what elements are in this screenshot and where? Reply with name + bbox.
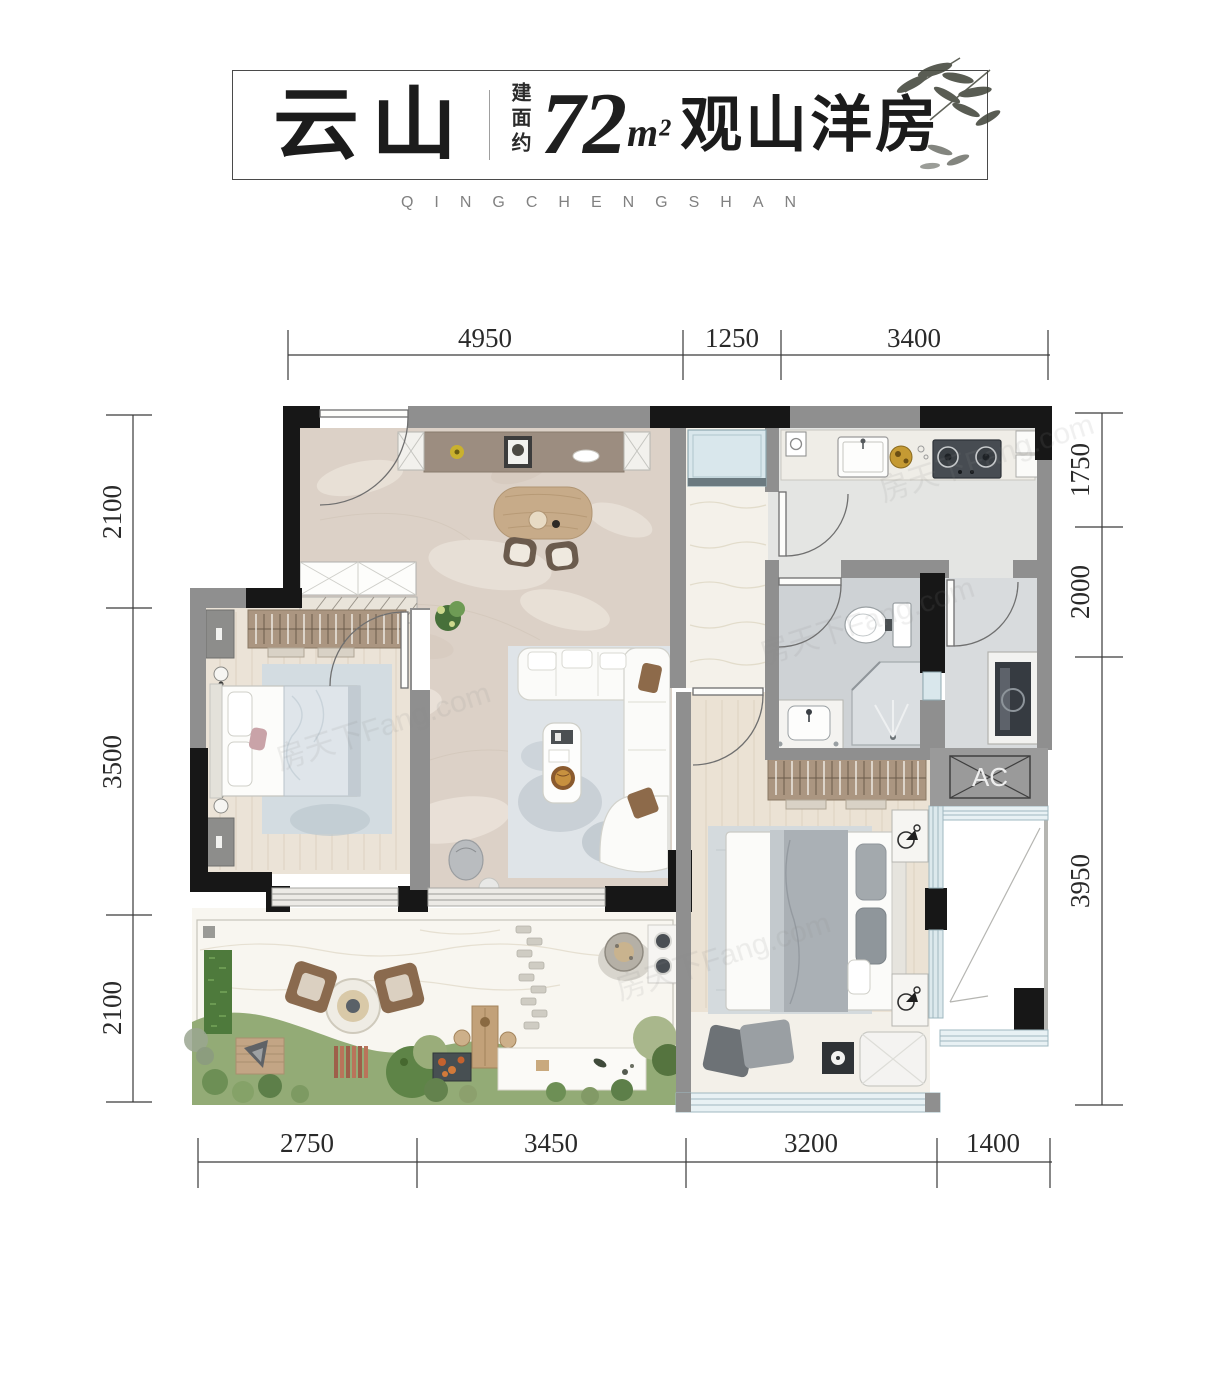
dining-cup [552,520,560,528]
bay-east-edge [1044,806,1048,1030]
sofa-pillow-3 [600,653,626,669]
dimension-bottom: 2750 3450 3200 1400 [198,1128,1052,1188]
terrace-sliding-door-2 [428,888,605,906]
terrace-sliding-door-1 [272,888,398,906]
wall-pier-east [605,886,669,912]
dim-bottom-4: 1400 [966,1128,1020,1158]
dim-top-1: 4950 [458,323,512,353]
dim-top-2: 1250 [705,323,759,353]
sofa-pillow-2 [562,650,592,668]
bedroom2-south-window [676,1093,940,1112]
wall-east-gray [1037,460,1052,750]
wall-bedroom1-west-black [190,748,208,878]
bamboo-icon [895,58,1002,170]
dining-chair-left [502,536,538,568]
sofa-pillow-1 [528,652,556,670]
dim-bottom-1: 2750 [280,1128,334,1158]
ac-label: AC [972,762,1008,792]
lounge-chair [449,840,483,880]
sideboard-flower-center [455,450,460,455]
dresser-handle-2 [216,836,222,848]
dimension-top: 4950 1250 3400 [288,323,1050,380]
dresser-handle-1 [216,628,222,640]
bathroom-vanity [768,700,843,750]
kitchen-dish [890,446,912,468]
dim-left-2: 3500 [97,735,127,789]
wall-lamp-bottom [214,799,228,813]
coffee-table [543,723,581,803]
bath-utility-window [923,672,941,700]
hallway-window [688,430,766,486]
cabinet-x-left [398,432,424,470]
utility-room [988,652,1038,744]
terrace-corner-block-left [203,926,215,938]
wall-bedroom1-south [190,872,272,892]
floor-plan-canvas: AC 房天下Fang.com 房天下Fang.com 房天下Fang.com 房… [0,0,1218,1400]
planter-box [433,1053,471,1081]
nightstand-bottom [892,974,928,1026]
wall-bay-corner [1014,988,1048,1030]
dim-right-3: 3950 [1065,854,1095,908]
wall-bedroom1-west-gray [190,608,206,748]
wall-utility-ne [1013,560,1037,578]
wall-top-black-2 [650,406,790,428]
wall-bedroom2-north [765,748,930,760]
tree-shade-dot [400,1058,408,1066]
dimension-left: 2100 3500 2100 [97,415,152,1102]
bay-bottom-window [940,1030,1048,1046]
dim-bottom-2: 3450 [524,1128,578,1158]
nightstand-top [892,810,928,862]
hedge [204,950,232,1034]
wall-bedroom2-east-pier [925,888,947,930]
fire-pit-center [346,999,360,1013]
dim-left-1: 2100 [97,485,127,539]
wall-top-black-1 [283,406,320,428]
wall-bath-nw [765,560,779,578]
dim-top-3: 3400 [887,323,941,353]
kitchen-left-unit [786,432,806,456]
wall-bedroom2-west [676,692,691,1093]
ac-south-window [935,806,1048,820]
wall-living-hall [670,428,686,688]
sideboard-dish [573,450,599,462]
bedroom-1-rug-motif [290,804,370,836]
wall-top-black-3 [920,406,1050,428]
page: 云山 建面约 72 m² 观山洋房 QINGCHENGSHAN [0,0,1218,1400]
dining-plate [529,511,547,529]
dim-right-1: 1750 [1065,443,1095,497]
sideboard-art-motif [512,444,524,456]
kitchen-dish-food-2 [904,459,909,464]
bedroom2-east-window-2 [929,930,943,1018]
kitchen-sink [838,437,888,477]
bedroom2-east-window-1 [929,806,943,888]
kitchen-dish-food [895,451,901,457]
dining-chair-right [544,540,579,572]
cabinet-x-right [624,432,650,470]
wall-west-living [283,428,300,592]
bedroom1-door-opening [412,610,430,690]
dim-bottom-3: 3200 [784,1128,838,1158]
dim-right-2: 2000 [1065,565,1095,619]
dimension-right: 1750 2000 3950 [1065,413,1123,1105]
wall-lamp-top [214,667,228,681]
wall-bedroom1-north-black [246,588,302,608]
wall-hall-kitchen [765,428,779,492]
washing-machine [988,652,1038,744]
dim-left-3: 2100 [97,981,127,1035]
